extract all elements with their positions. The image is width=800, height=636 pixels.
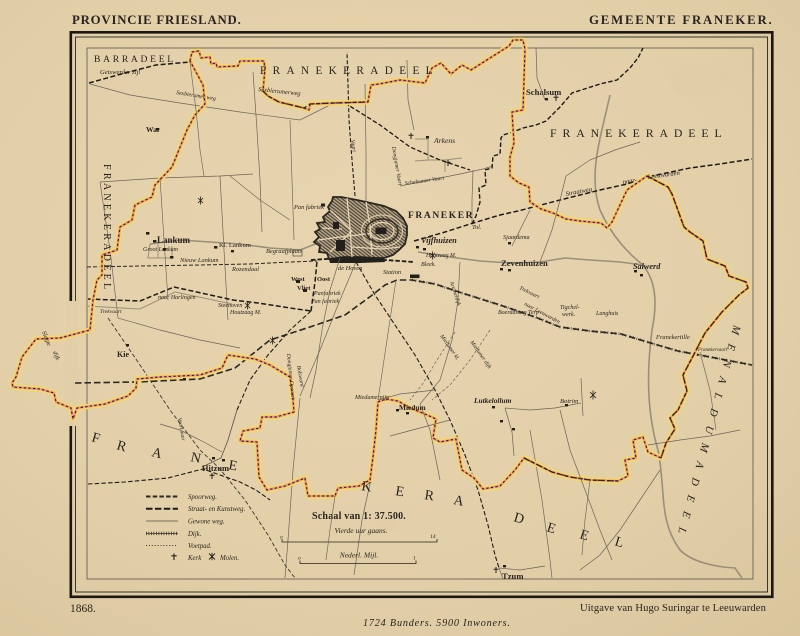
svg-text:Houtzaag M.: Houtzaag M. (425, 253, 456, 259)
svg-text:Hitzum: Hitzum (202, 464, 229, 473)
svg-text:West: West (291, 276, 306, 283)
svg-text:Uitgave van Hugo Suringar te L: Uitgave van Hugo Suringar te Leeuwarden (580, 603, 767, 614)
svg-text:Vliet: Vliet (297, 285, 311, 292)
svg-text:Nieuw Lankum: Nieuw Lankum (179, 257, 219, 264)
svg-text:Kie: Kie (117, 350, 129, 359)
svg-text:Voetpad.: Voetpad. (188, 543, 212, 550)
svg-text:Begraafplaats: Begraafplaats (266, 248, 303, 255)
svg-text:Langhuis: Langhuis (595, 311, 619, 317)
svg-text:1: 1 (413, 556, 416, 562)
svg-text:Lankum: Lankum (157, 235, 191, 245)
svg-text:Nederl. Mijl.: Nederl. Mijl. (339, 551, 379, 560)
svg-text:PROVINCIE FRIESLAND.: PROVINCIE FRIESLAND. (72, 13, 242, 27)
svg-text:werk.: werk. (562, 312, 575, 318)
svg-text:Steenoven: Steenoven (218, 303, 242, 309)
svg-text:o: o (298, 556, 301, 562)
svg-text:FRANEKERADEEL: FRANEKERADEEL (260, 65, 439, 77)
svg-text:Arkens: Arkens (433, 136, 455, 145)
svg-text:BARRADEEL: BARRADEEL (94, 54, 176, 65)
svg-text:o: o (280, 535, 283, 541)
svg-text:FRANEKER: FRANEKER (408, 211, 474, 221)
svg-text:naar Harlingen: naar Harlingen (158, 295, 196, 301)
svg-text:Lutkelollum: Lutkelollum (473, 396, 512, 405)
svg-text:GEMEENTE FRANEKER.: GEMEENTE FRANEKER. (589, 13, 774, 27)
svg-text:Schaal van 1: 37.500.: Schaal van 1: 37.500. (312, 511, 406, 522)
svg-text:Tzum: Tzum (502, 571, 524, 581)
svg-text:Tol.: Tol. (472, 224, 482, 231)
svg-text:Groot Lankum: Groot Lankum (143, 247, 179, 253)
svg-text:Tigchel-: Tigchel- (560, 305, 580, 311)
svg-text:Salwerd: Salwerd (633, 262, 661, 271)
svg-text:Vierde uur gaans.: Vierde uur gaans. (334, 526, 387, 535)
svg-text:Botrim: Botrim (560, 398, 579, 405)
svg-text:Kl. Lankum: Kl. Lankum (219, 242, 252, 249)
svg-text:Schalsum: Schalsum (526, 87, 562, 97)
svg-text:FRANEKERADEEL: FRANEKERADEEL (550, 126, 728, 140)
svg-text:Vijfhuizen: Vijfhuizen (421, 236, 457, 245)
svg-text:Dijk.: Dijk. (187, 531, 202, 538)
svg-text:Trekvaart: Trekvaart (100, 309, 122, 315)
svg-text:Pan fabriek: Pan fabriek (310, 298, 339, 305)
svg-text:Houtzaag M.: Houtzaag M. (229, 310, 261, 316)
svg-text:Straat- en Kunstweg.: Straat- en Kunstweg. (188, 506, 246, 513)
svg-text:Bleek.: Bleek. (421, 262, 436, 268)
svg-text:Station: Station (383, 269, 401, 276)
svg-text:1868.: 1868. (70, 603, 96, 615)
svg-text:Spoorweg.: Spoorweg. (188, 494, 217, 501)
svg-text:Oost: Oost (317, 276, 331, 283)
svg-text:14: 14 (430, 533, 436, 540)
svg-text:Kerk: Kerk (187, 555, 202, 562)
svg-text:de Hoven: de Hoven (338, 265, 362, 272)
svg-text:Rozendaal: Rozendaal (231, 266, 259, 273)
svg-text:Pan fabriek: Pan fabriek (293, 204, 324, 211)
svg-text:Getswerder zijl: Getswerder zijl (100, 69, 140, 76)
svg-text:Gewone weg.: Gewone weg. (188, 519, 225, 526)
svg-text:Miedumerpijp: Miedumerpijp (354, 395, 389, 401)
svg-text:Franekertille: Franekertille (655, 334, 690, 341)
svg-text:Panfabriek: Panfabriek (313, 290, 341, 297)
svg-text:Franekervaart: Franekervaart (697, 348, 728, 353)
svg-text:1724 Bunders. 5900 Inwoners.: 1724 Bunders. 5900 Inwoners. (363, 618, 511, 629)
svg-text:FRANEKERADEEL: FRANEKERADEEL (101, 164, 112, 292)
svg-text:Molen.: Molen. (219, 555, 239, 562)
